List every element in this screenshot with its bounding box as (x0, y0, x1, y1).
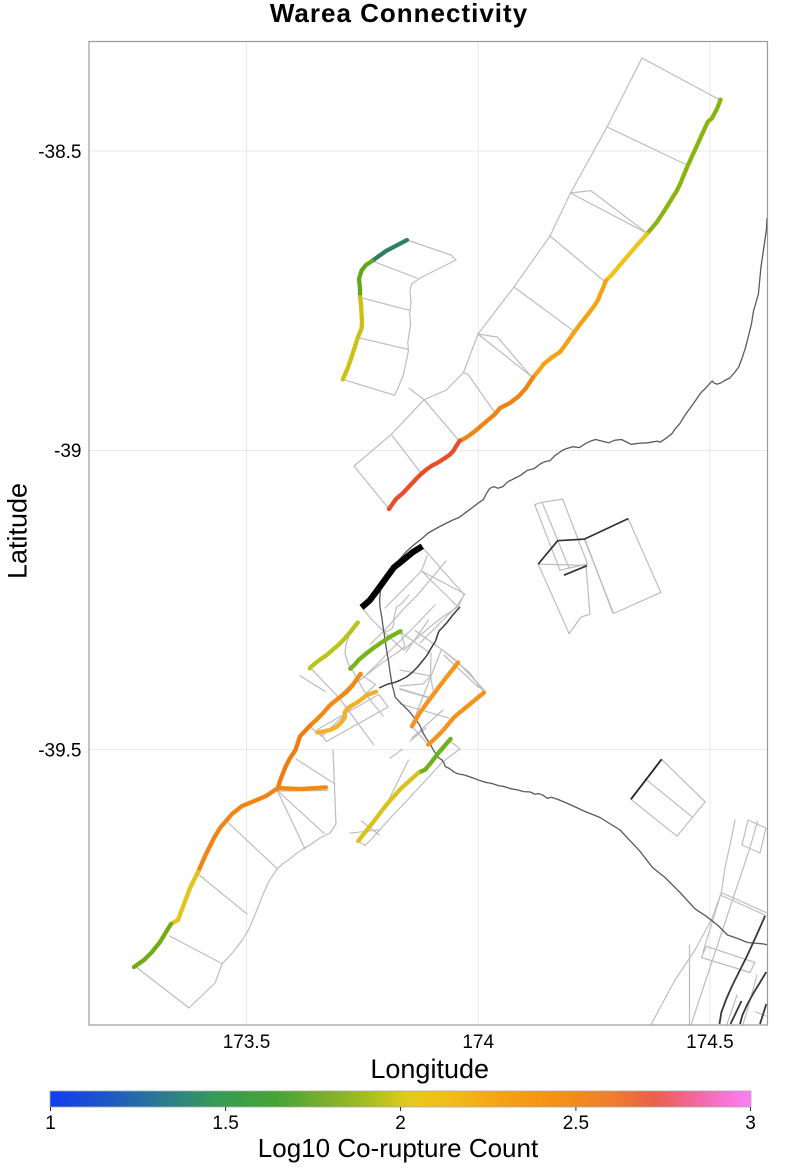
svg-text:-39: -39 (54, 441, 81, 462)
svg-text:3: 3 (745, 1113, 756, 1134)
svg-text:2: 2 (395, 1113, 406, 1134)
svg-text:Warea Connectivity: Warea Connectivity (270, 0, 528, 28)
svg-text:174: 174 (462, 1032, 494, 1053)
svg-text:1: 1 (45, 1113, 56, 1134)
svg-text:174.5: 174.5 (686, 1032, 734, 1053)
svg-text:-38.5: -38.5 (38, 142, 81, 163)
svg-text:1.5: 1.5 (212, 1113, 238, 1134)
svg-text:2.5: 2.5 (563, 1113, 589, 1134)
svg-text:Log10 Co-rupture Count: Log10 Co-rupture Count (258, 1133, 539, 1163)
svg-text:Latitude: Latitude (3, 483, 33, 579)
svg-text:173.5: 173.5 (223, 1032, 271, 1053)
svg-text:Longitude: Longitude (370, 1054, 489, 1084)
svg-text:-39.5: -39.5 (38, 741, 81, 762)
